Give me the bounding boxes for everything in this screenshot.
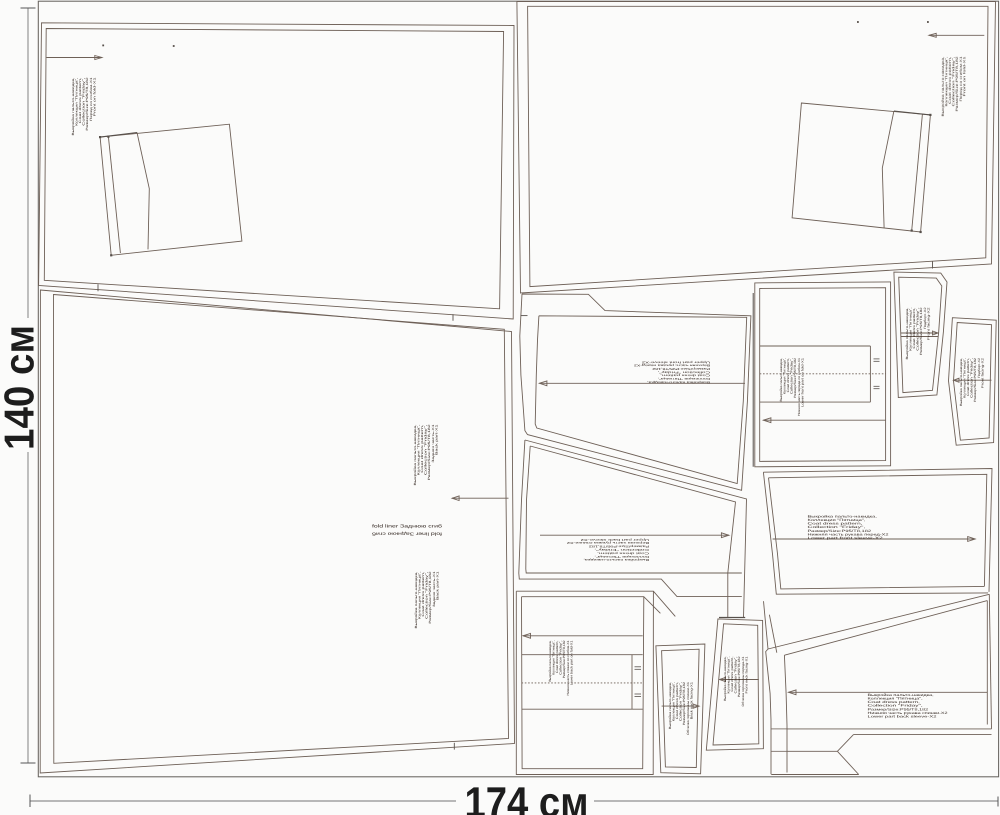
svg-text:Back part-X1: Back part-X1 — [435, 571, 439, 600]
svg-text:Back neck facing-X1: Back neck facing-X1 — [689, 682, 693, 720]
svg-text:Front facing-X2: Front facing-X2 — [926, 307, 930, 340]
svg-text:Lower back part on fold-X1: Lower back part on fold-X1 — [569, 640, 573, 685]
svg-text:Lower front part on fold-X1: Lower front part on fold-X1 — [800, 358, 804, 407]
svg-text:Lower part back sleeve-X2: Lower part back sleeve-X2 — [868, 715, 937, 719]
svg-text:Front on fold-X1: Front on fold-X1 — [92, 77, 96, 116]
svg-text:Back part-X1: Back part-X1 — [434, 424, 438, 455]
svg-text:fold liner Заднюю сгиб: fold liner Заднюю сгиб — [372, 524, 443, 529]
svg-text:Front on fold-X1: Front on fold-X1 — [962, 56, 966, 96]
svg-text:140 см: 140 см — [0, 325, 43, 450]
svg-text:fold liner Заднюю сгиб: fold liner Заднюю сгиб — [371, 532, 442, 537]
svg-text:Front neck facing-X1: Front neck facing-X1 — [744, 656, 748, 693]
svg-text:Lower part front sleeve-X2: Lower part front sleeve-X2 — [808, 536, 884, 540]
svg-text:Upper part front sleeve-X2: Upper part front sleeve-X2 — [641, 360, 710, 364]
svg-text:Front facing-X2: Front facing-X2 — [980, 358, 984, 388]
svg-text:Upper part back sleeve-X2: Upper part back sleeve-X2 — [580, 538, 649, 542]
svg-text:174 см: 174 см — [465, 779, 589, 815]
